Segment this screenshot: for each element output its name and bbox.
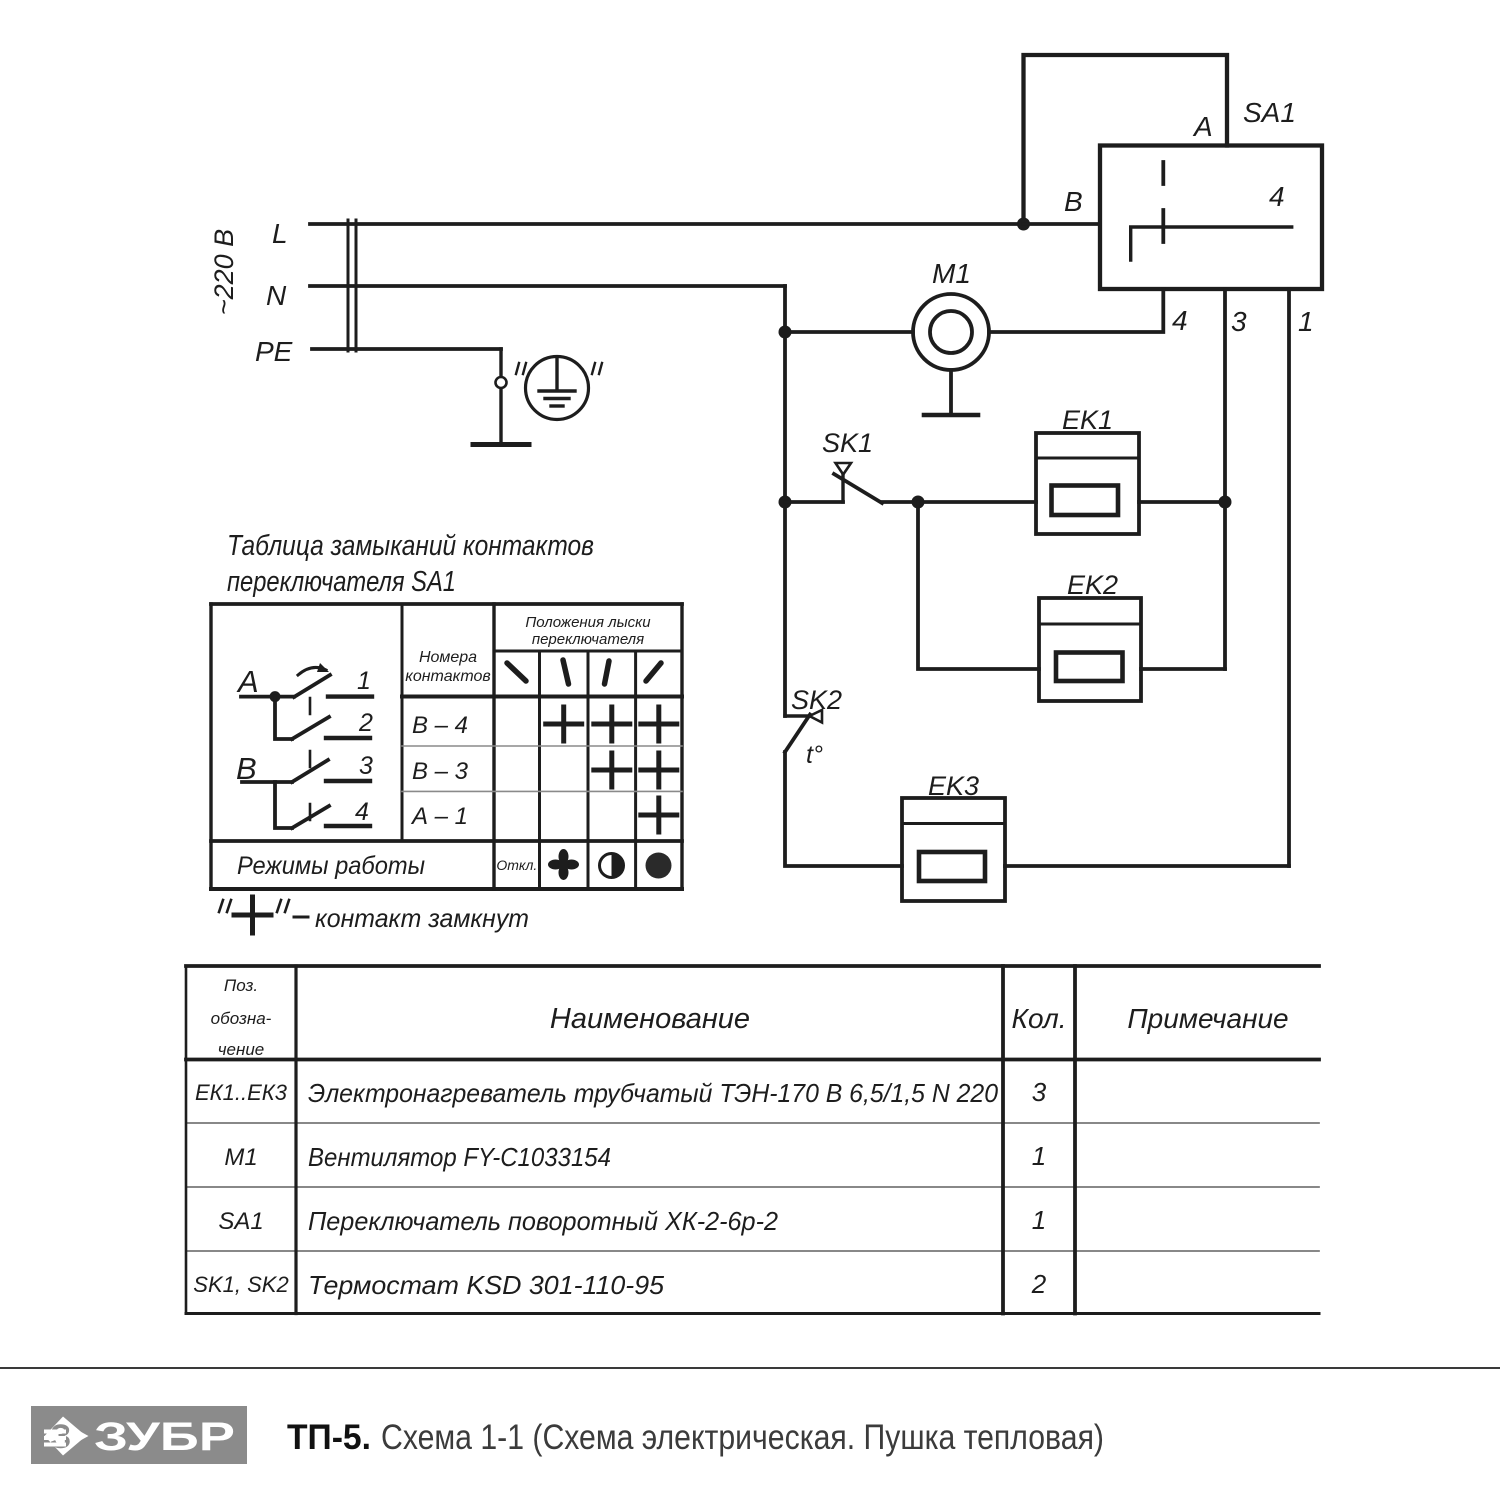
svg-text:Откл.: Откл. [496, 857, 537, 873]
svg-text:Вентилятор FY-C1033154: Вентилятор FY-C1033154 [308, 1142, 611, 1172]
svg-text:SK1, SK2: SK1, SK2 [193, 1272, 288, 1297]
svg-text:SA1: SA1 [1243, 97, 1296, 128]
svg-text:ЕК1..ЕК3: ЕК1..ЕК3 [195, 1080, 288, 1105]
svg-text:4: 4 [1172, 305, 1188, 336]
svg-text:PE: PE [255, 336, 293, 367]
svg-text:Термостат KSD 301-110-95: Термостат KSD 301-110-95 [308, 1270, 665, 1300]
svg-text:1: 1 [1298, 306, 1314, 337]
svg-text:обозна-: обозна- [211, 1009, 272, 1028]
svg-text:4: 4 [1269, 181, 1285, 212]
svg-text:B: B [1064, 186, 1083, 217]
svg-text:Наименование: Наименование [550, 1003, 750, 1035]
svg-text:EK2: EK2 [1067, 570, 1118, 600]
svg-text:контактов: контактов [405, 668, 490, 685]
svg-text:Таблица замыканий контактов: Таблица замыканий контактов [227, 530, 594, 562]
svg-text:В – 3: В – 3 [412, 758, 469, 785]
svg-text:контакт замкнут: контакт замкнут [315, 903, 529, 933]
svg-text:чение: чение [218, 1040, 265, 1059]
svg-text:Кол.: Кол. [1011, 1003, 1066, 1034]
svg-text:4: 4 [355, 798, 369, 826]
svg-text:EK1: EK1 [1062, 405, 1113, 435]
svg-text:A: A [236, 664, 259, 699]
svg-text:N: N [266, 280, 287, 311]
svg-text:Номера: Номера [419, 649, 477, 666]
svg-text:SA1: SA1 [218, 1208, 263, 1235]
svg-text:переключателя SA1: переключателя SA1 [227, 566, 456, 598]
svg-text:t°: t° [806, 741, 823, 769]
svg-text:Поз.: Поз. [224, 976, 258, 995]
svg-text:SK1: SK1 [822, 428, 873, 458]
svg-text:2: 2 [1031, 1269, 1047, 1299]
svg-text:SK2: SK2 [791, 685, 842, 715]
svg-text:М1: М1 [224, 1144, 257, 1171]
svg-text:1: 1 [1032, 1141, 1046, 1171]
svg-text:Переключатель поворотный ХК-2-: Переключатель поворотный ХК-2-6р-2 [308, 1206, 779, 1236]
svg-text:А – 1: А – 1 [410, 803, 468, 830]
svg-text:3: 3 [1032, 1077, 1047, 1107]
svg-text:2: 2 [358, 709, 373, 737]
svg-text:ТП-5.: ТП-5. [287, 1418, 371, 1457]
svg-text:3: 3 [1231, 306, 1247, 337]
svg-text:3: 3 [359, 752, 373, 780]
svg-text:Схема 1-1 (Схема электрическая: Схема 1-1 (Схема электрическая. Пушка те… [381, 1418, 1104, 1457]
svg-text:L: L [272, 218, 288, 249]
svg-text:1: 1 [1032, 1205, 1046, 1235]
svg-text:1: 1 [357, 667, 371, 695]
svg-text:A: A [1192, 111, 1213, 142]
svg-text:переключателя: переключателя [532, 631, 644, 648]
svg-text:ЗУБР: ЗУБР [94, 1415, 235, 1459]
svg-text:В – 4: В – 4 [412, 712, 468, 739]
svg-text:Положения лыски: Положения лыски [525, 614, 651, 631]
svg-text:Примечание: Примечание [1127, 1003, 1288, 1034]
svg-text:M1: M1 [932, 258, 971, 289]
svg-text:Электронагреватель трубчатый Т: Электронагреватель трубчатый ТЭН-170 В 6… [308, 1078, 999, 1108]
svg-text:~220 В: ~220 В [209, 229, 239, 315]
svg-text:Режимы работы: Режимы работы [237, 852, 425, 880]
